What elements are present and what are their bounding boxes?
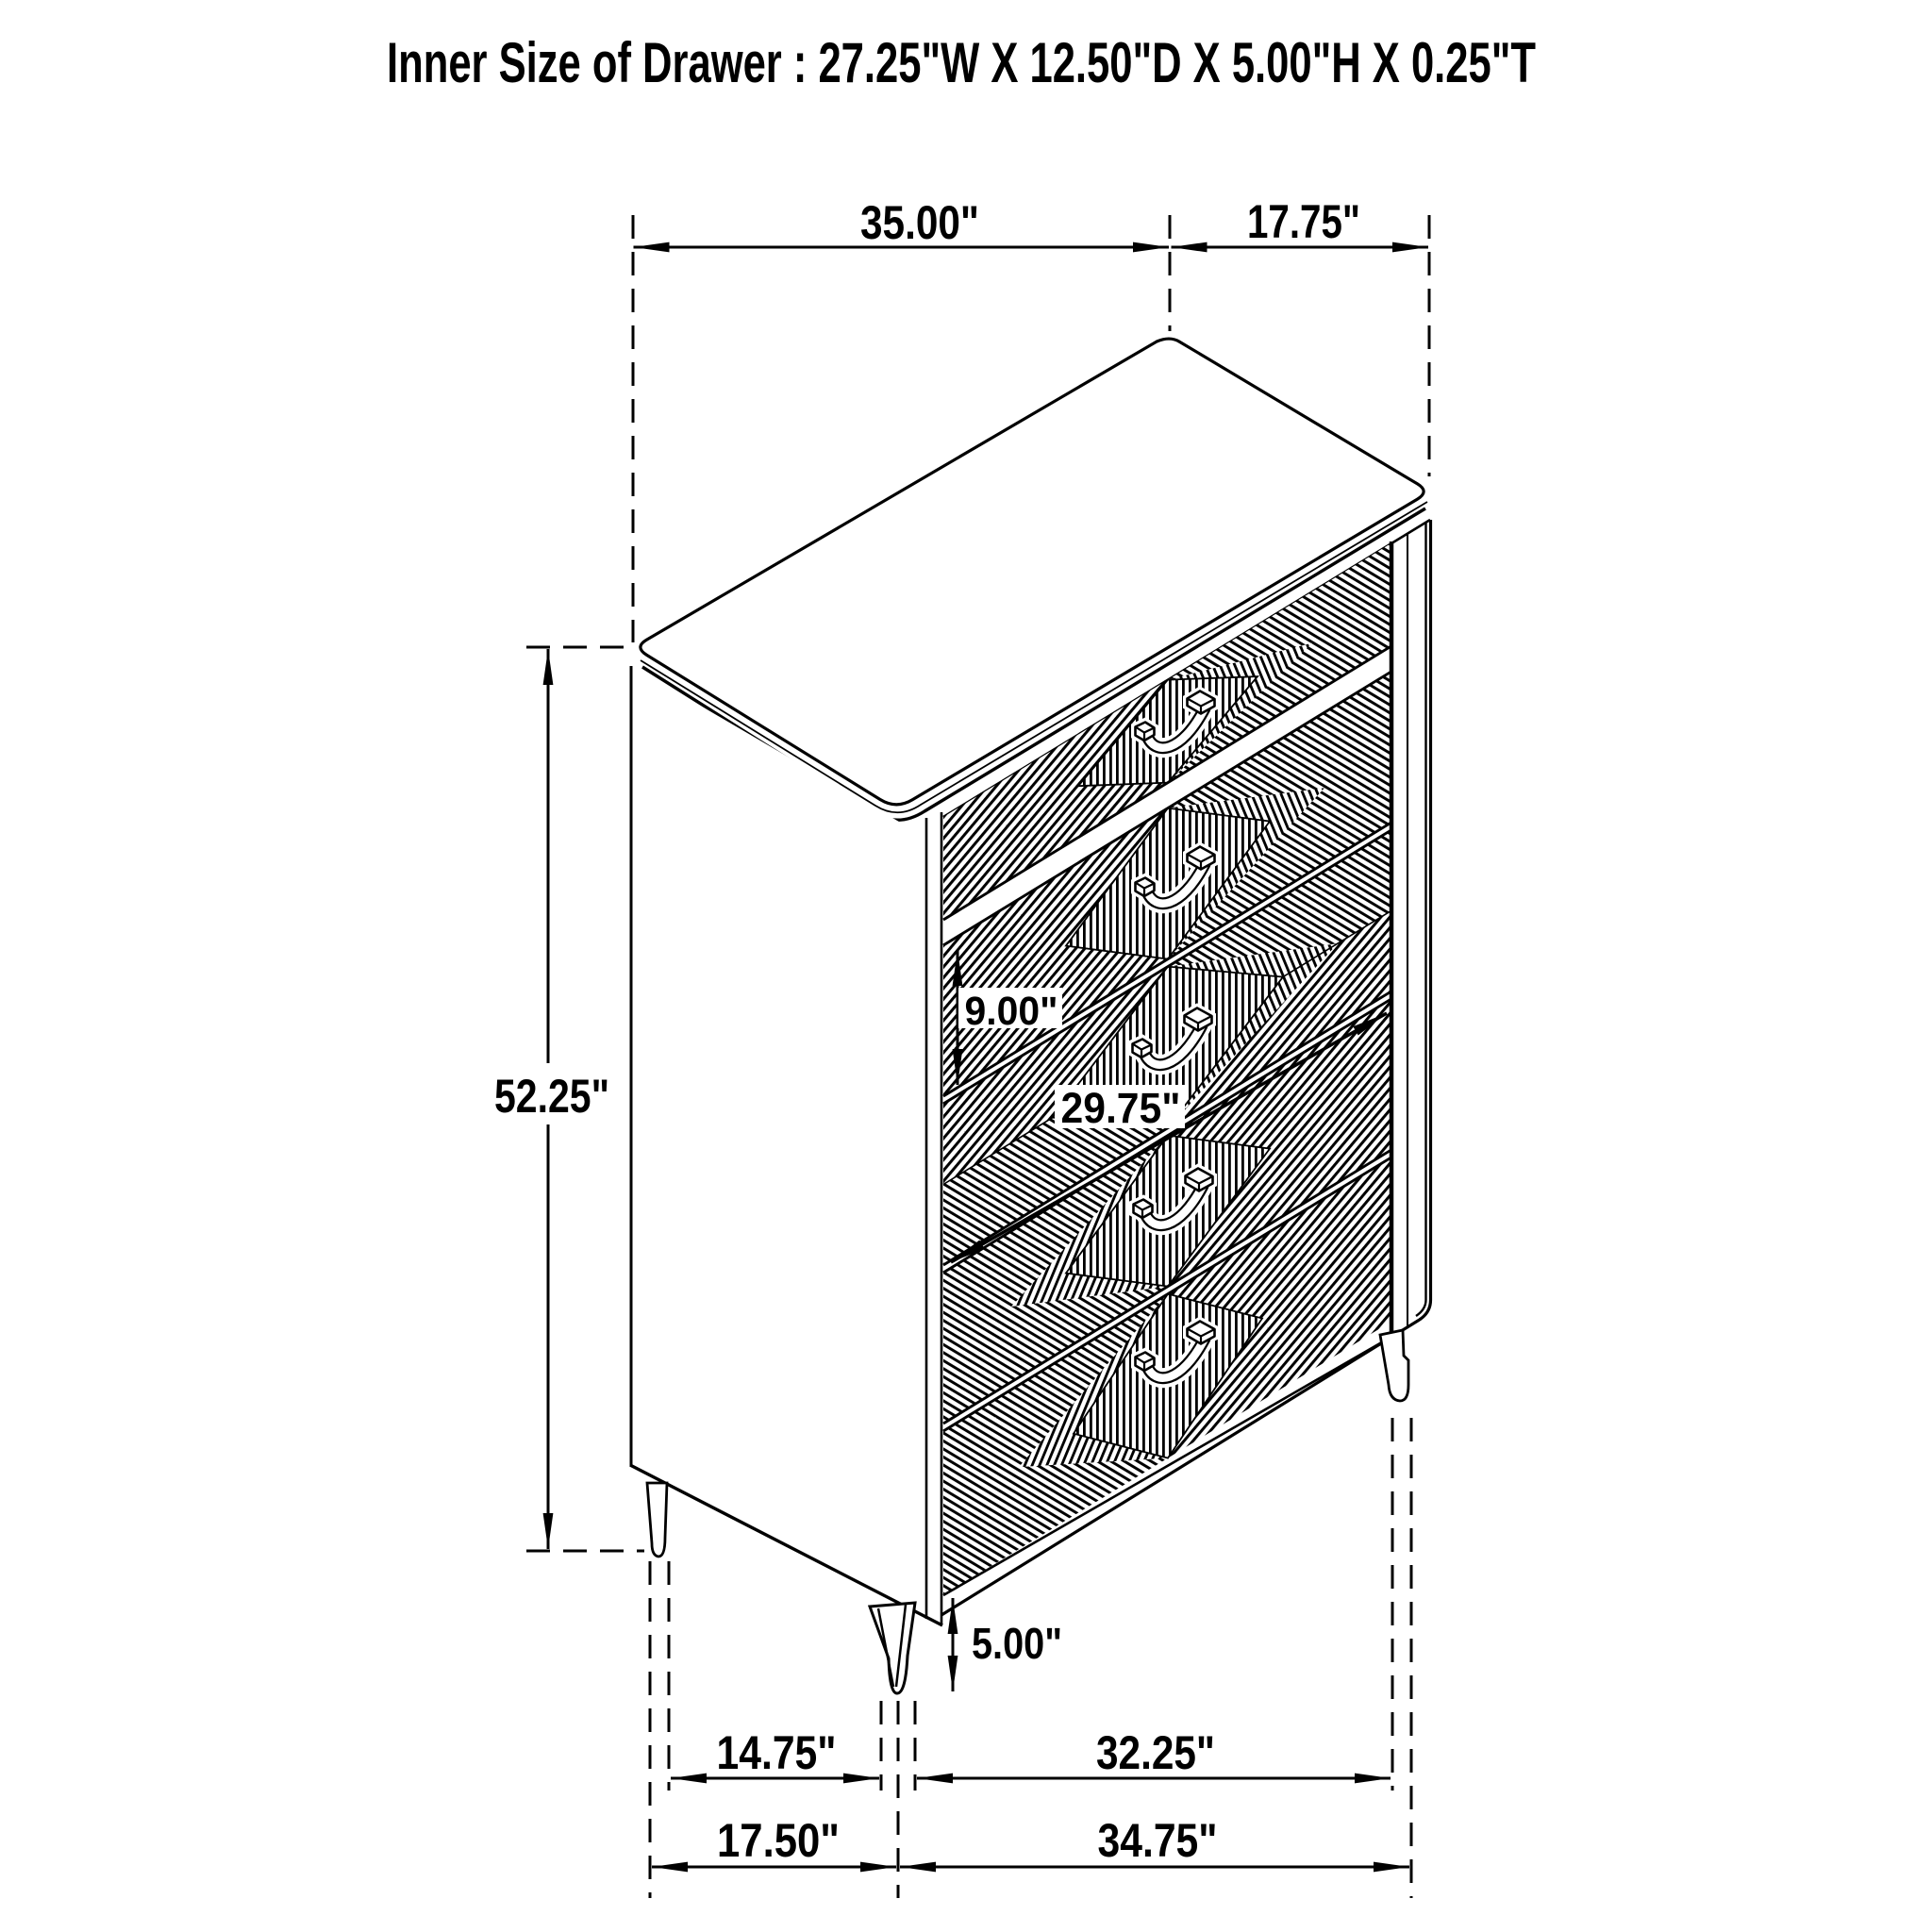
svg-text:35.00": 35.00" [860,196,979,249]
svg-text:17.75": 17.75" [1247,195,1360,248]
svg-text:5.00": 5.00" [972,1619,1062,1668]
svg-text:34.75": 34.75" [1098,1814,1218,1867]
svg-text:32.25": 32.25" [1096,1726,1215,1779]
svg-text:Inner Size of Drawer : 27.25"W: Inner Size of Drawer : 27.25"W X 12.50"D… [387,31,1536,94]
svg-text:52.25": 52.25" [494,1070,609,1123]
svg-text:9.00": 9.00" [965,989,1058,1034]
svg-text:17.50": 17.50" [717,1814,840,1867]
svg-text:29.75": 29.75" [1061,1084,1181,1132]
svg-text:14.75": 14.75" [717,1726,837,1779]
